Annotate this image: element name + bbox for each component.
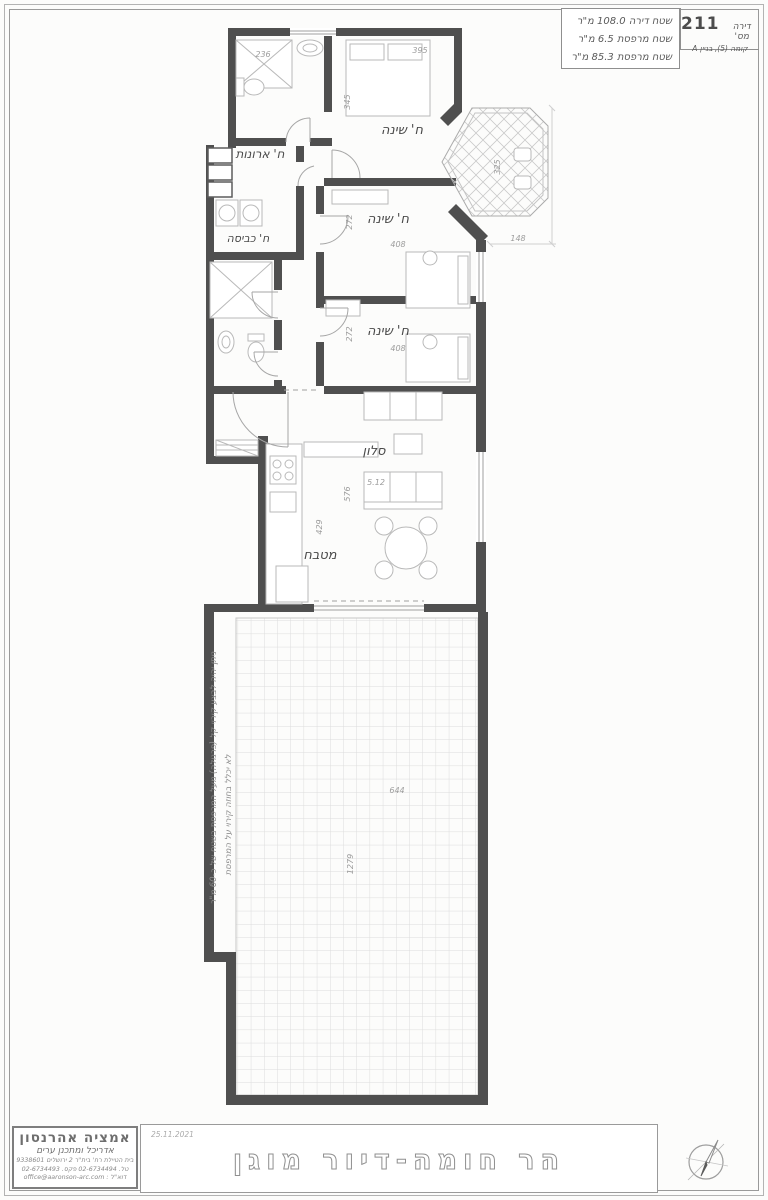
dim-bed3-w: 408 — [390, 344, 405, 353]
room-label-living: סלון — [363, 444, 386, 459]
room-label-closet: ח' ארונות — [236, 147, 285, 161]
dim-living-h: 576 — [343, 486, 352, 501]
terrace-note-2: ניתן יהיה לבצע קירוי קל (פרגולה) מעל המר… — [209, 651, 219, 904]
architect-phone: טל. 02-6734494 פקס. 02-6734493 — [14, 1166, 136, 1175]
dim-living-w: 5.12 — [367, 478, 385, 487]
architect-email: דוא"ל : office@aaronson-arc.com — [14, 1174, 136, 1183]
room-label-bedroom2: ח' שינה — [367, 212, 410, 227]
dim-shower: 236 — [255, 50, 270, 59]
drawing-sheet: שטח דירה 108.0 מ"ר שטח מרפסת 6.5 מ"ר שטח… — [0, 0, 768, 1200]
room-label-laundry: ח' כביסה — [227, 232, 270, 245]
dim-kitchen-h: 429 — [315, 519, 324, 534]
stove — [270, 456, 296, 484]
dim-terrace-h: 1279 — [346, 854, 355, 874]
kitchen-island — [276, 566, 308, 602]
dim-bed2-w: 408 — [390, 240, 405, 249]
room-label-bedroom1: ח' שינה — [381, 123, 424, 138]
coffee-table — [394, 434, 422, 454]
sofa-module — [364, 392, 390, 420]
terrace-note-1: לא יכלל בחוזה קירוי על המרפסת — [224, 753, 234, 875]
room-label-kitchen: מטבח — [303, 548, 337, 563]
dim-bed1-w: 395 — [412, 46, 427, 55]
fixtures — [208, 40, 470, 604]
project-title: הר חומה-דיור מוגן — [233, 1145, 565, 1176]
terrace-tiles — [236, 618, 478, 1095]
architect-name: אמציה אהרנסון — [14, 1131, 136, 1146]
dim-bed3-h: 272 — [345, 326, 354, 341]
architect-role: אדריכל ומתכנן ערים — [14, 1146, 136, 1157]
dim-balcony-h: 325 — [493, 159, 502, 174]
kitchen-sink — [270, 492, 296, 512]
architect-address: בית הטיילת רח' בית"ר 2 ירושלים 9338601 — [14, 1157, 136, 1166]
north-arrow-icon — [676, 1134, 738, 1190]
floor-plan: ח' שינה ח' ארונות ח' כביסה ח' שינה ח' שי… — [0, 0, 768, 1120]
dim-bed2-h: 272 — [345, 214, 354, 229]
toilet-top — [244, 79, 264, 95]
dim-terrace-w: 644 — [389, 786, 404, 795]
room-label-bedroom3: ח' שינה — [367, 324, 410, 339]
dining-table — [385, 527, 427, 569]
desk-2 — [332, 190, 388, 204]
architect-stamp: אמציה אהרנסון אדריכל ומתכנן ערים בית הטי… — [12, 1126, 138, 1189]
terrace-notes: לא יכלל בחוזה קירוי על המרפסת ניתן יהיה … — [209, 651, 234, 904]
project-title-svg: הר חומה-דיור מוגן — [169, 1135, 629, 1185]
dim-bed1-h: 345 — [343, 94, 352, 109]
dim-balcony-w: 148 — [510, 234, 525, 243]
title-panel: 25.11.2021 הר חומה-דיור מוגן — [140, 1124, 658, 1193]
